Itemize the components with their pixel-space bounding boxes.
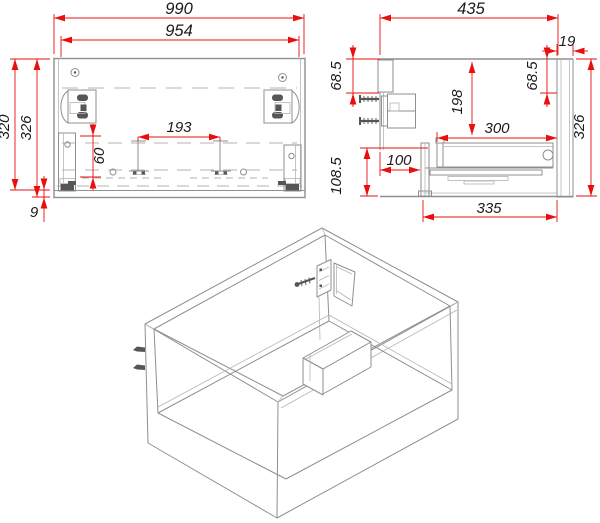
dimension-side-slide-length: 335	[423, 200, 557, 222]
dim-108-5-label: 108.5	[328, 157, 345, 195]
front-view: 990 954 320 326 9	[0, 0, 305, 222]
dim-954-label: 954	[165, 22, 193, 40]
side-wall-pegs	[133, 347, 145, 371]
mounting-clip-left	[129, 141, 149, 175]
technical-drawing-page: 990 954 320 326 9	[0, 0, 600, 523]
dimension-front-inner-width: 954	[61, 22, 299, 57]
dim-326-side-label: 326	[571, 114, 588, 140]
dim-193-label: 193	[166, 119, 192, 136]
dim-68-5-left-label: 68.5	[328, 61, 345, 91]
drawer-slide-left	[59, 133, 77, 191]
dim-19-label: 19	[559, 33, 576, 50]
drawer-assembly-section	[419, 138, 554, 196]
dim-100-label: 100	[386, 152, 412, 169]
bottom-hole-right	[241, 169, 247, 175]
dimension-side-overall-depth: 435	[380, 0, 558, 55]
dim-60-label: 60	[91, 147, 108, 164]
drawer-hole	[543, 150, 553, 160]
screw-hole-mark-right	[279, 74, 287, 82]
back-rail-section	[378, 60, 393, 92]
side-view: 435 19 68.5 198 300	[328, 0, 597, 222]
drawer-slide-right	[278, 145, 301, 191]
dim-335-label: 335	[476, 200, 502, 217]
hanging-bracket-right	[264, 90, 299, 123]
wall-hanger-bracket	[360, 94, 416, 128]
dimension-front-rail-height: 60	[80, 124, 108, 190]
hanger-screw-top	[360, 95, 379, 103]
dim-9-label: 9	[30, 204, 39, 221]
dimension-side-front-panel: 19	[542, 33, 588, 56]
dim-326-label: 326	[18, 115, 35, 141]
dim-435-label: 435	[457, 0, 485, 18]
dim-68-5-right-label: 68.5	[524, 61, 541, 91]
dimension-side-hanger-right: 68.5	[524, 45, 557, 107]
dimension-side-bottom-section: 108.5	[328, 148, 428, 196]
screw-hole-mark-left	[71, 69, 79, 77]
dimension-side-overall-height: 326	[571, 59, 597, 196]
dim-990-label: 990	[165, 0, 193, 18]
dim-300-label: 300	[484, 120, 510, 137]
hanger-screw-bottom	[360, 117, 379, 125]
dimension-front-height-inner: 326	[18, 59, 50, 197]
dimension-side-back-height: 198	[449, 62, 472, 135]
dimension-side-drawer-depth: 300	[437, 120, 557, 142]
isometric-view	[133, 228, 458, 518]
drawing-canvas: 990 954 320 326 9	[0, 0, 600, 523]
mounting-clip-right	[211, 141, 231, 175]
dim-198-label: 198	[449, 89, 466, 115]
hanging-bracket-left	[61, 90, 96, 123]
dimension-side-back-clearance: 100	[380, 152, 420, 176]
cabinet-body	[145, 228, 458, 518]
dim-320-label: 320	[0, 114, 13, 140]
dimension-front-clip-spacing: 193	[138, 119, 220, 141]
